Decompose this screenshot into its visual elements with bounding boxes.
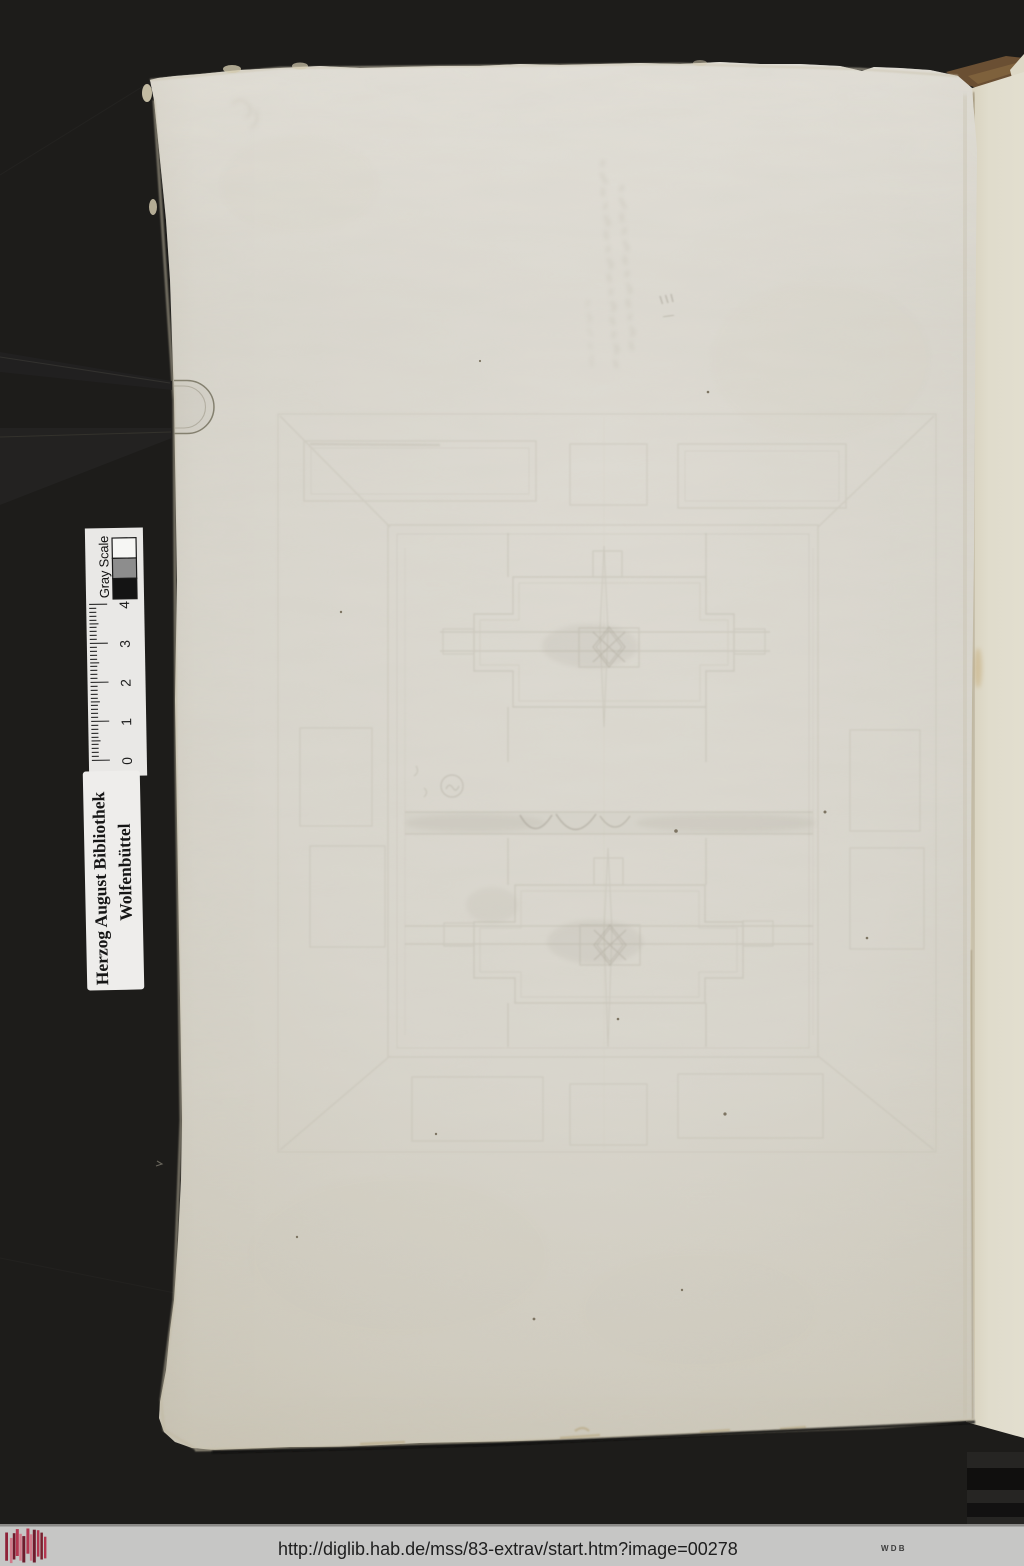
svg-text:WDB: WDB xyxy=(881,1544,907,1553)
svg-text:0: 0 xyxy=(119,757,135,765)
svg-text:4: 4 xyxy=(116,601,132,609)
svg-text:http://diglib.hab.de/mss/83-ex: http://diglib.hab.de/mss/83-extrav/start… xyxy=(278,1539,738,1559)
svg-text:1: 1 xyxy=(118,718,134,726)
svg-text:Wolfenbüttel: Wolfenbüttel xyxy=(114,823,136,921)
svg-text:3: 3 xyxy=(117,640,133,648)
svg-text:2: 2 xyxy=(117,679,133,687)
svg-text:Gray Scale: Gray Scale xyxy=(96,536,112,599)
svg-text:Herzog August Bibliothek: Herzog August Bibliothek xyxy=(88,791,112,985)
